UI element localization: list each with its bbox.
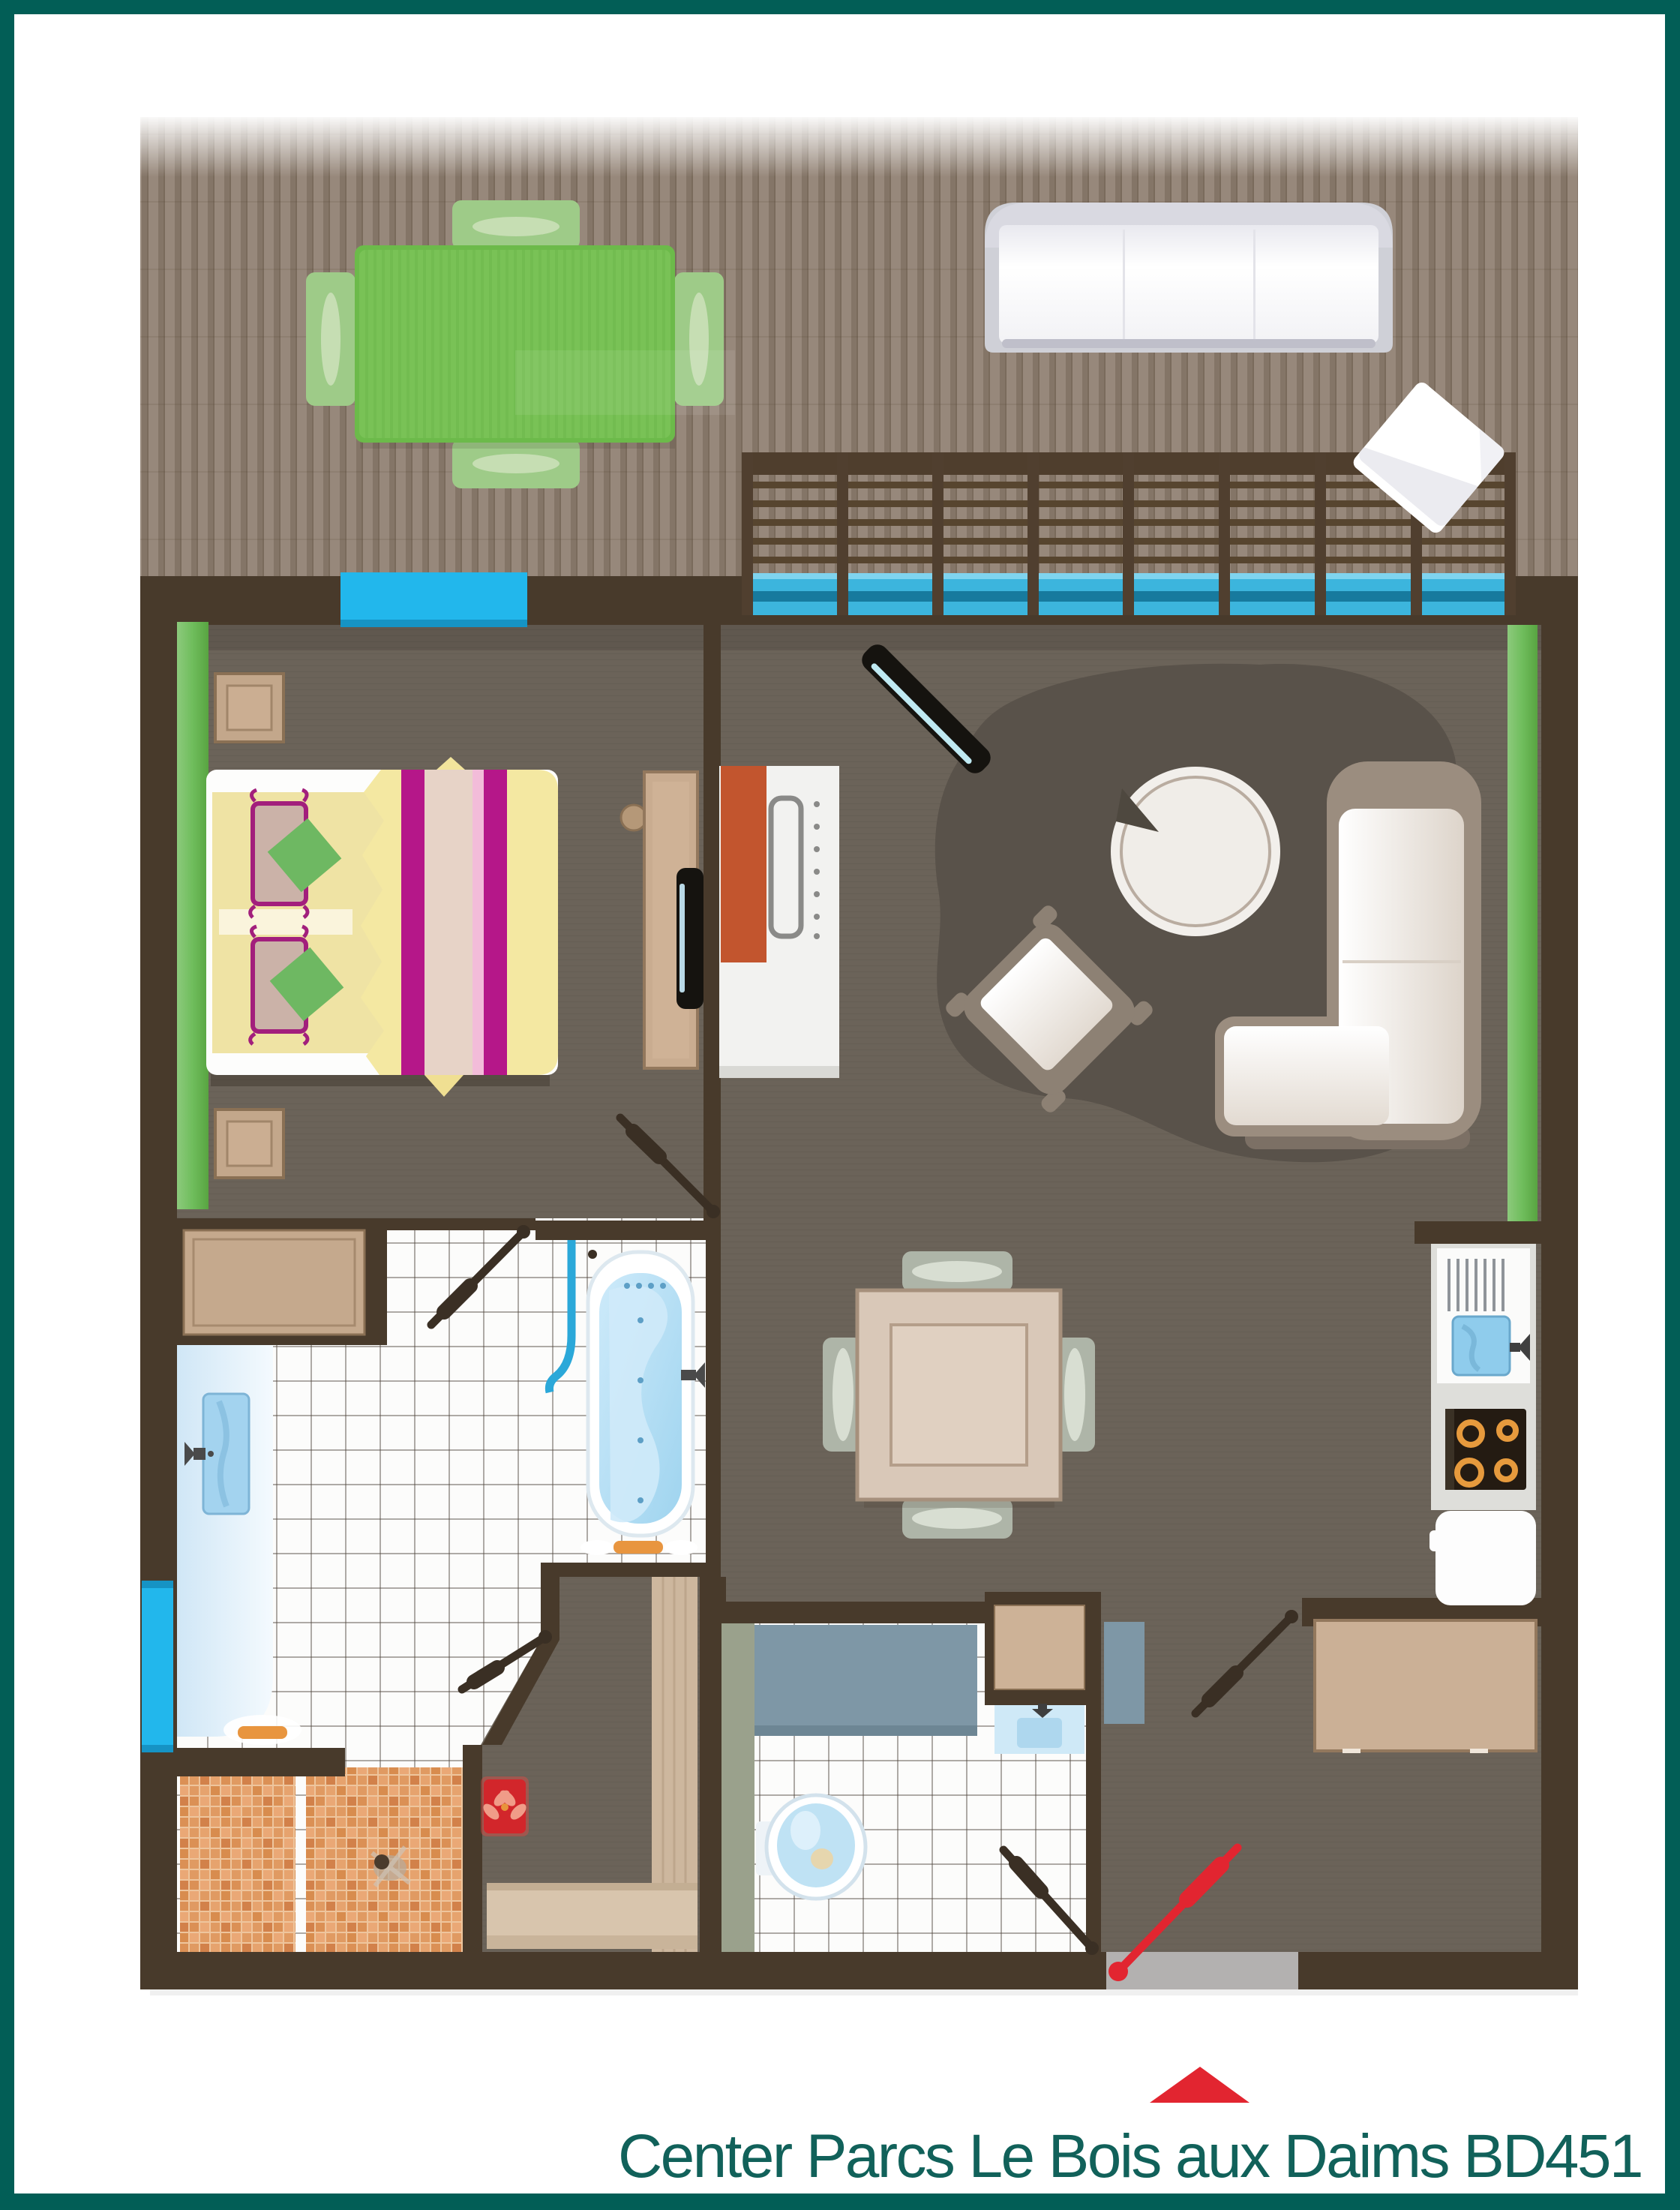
svg-text:Center Parcs Le Bois aux Daims: Center Parcs Le Bois aux Daims BD451	[618, 2122, 1642, 2190]
